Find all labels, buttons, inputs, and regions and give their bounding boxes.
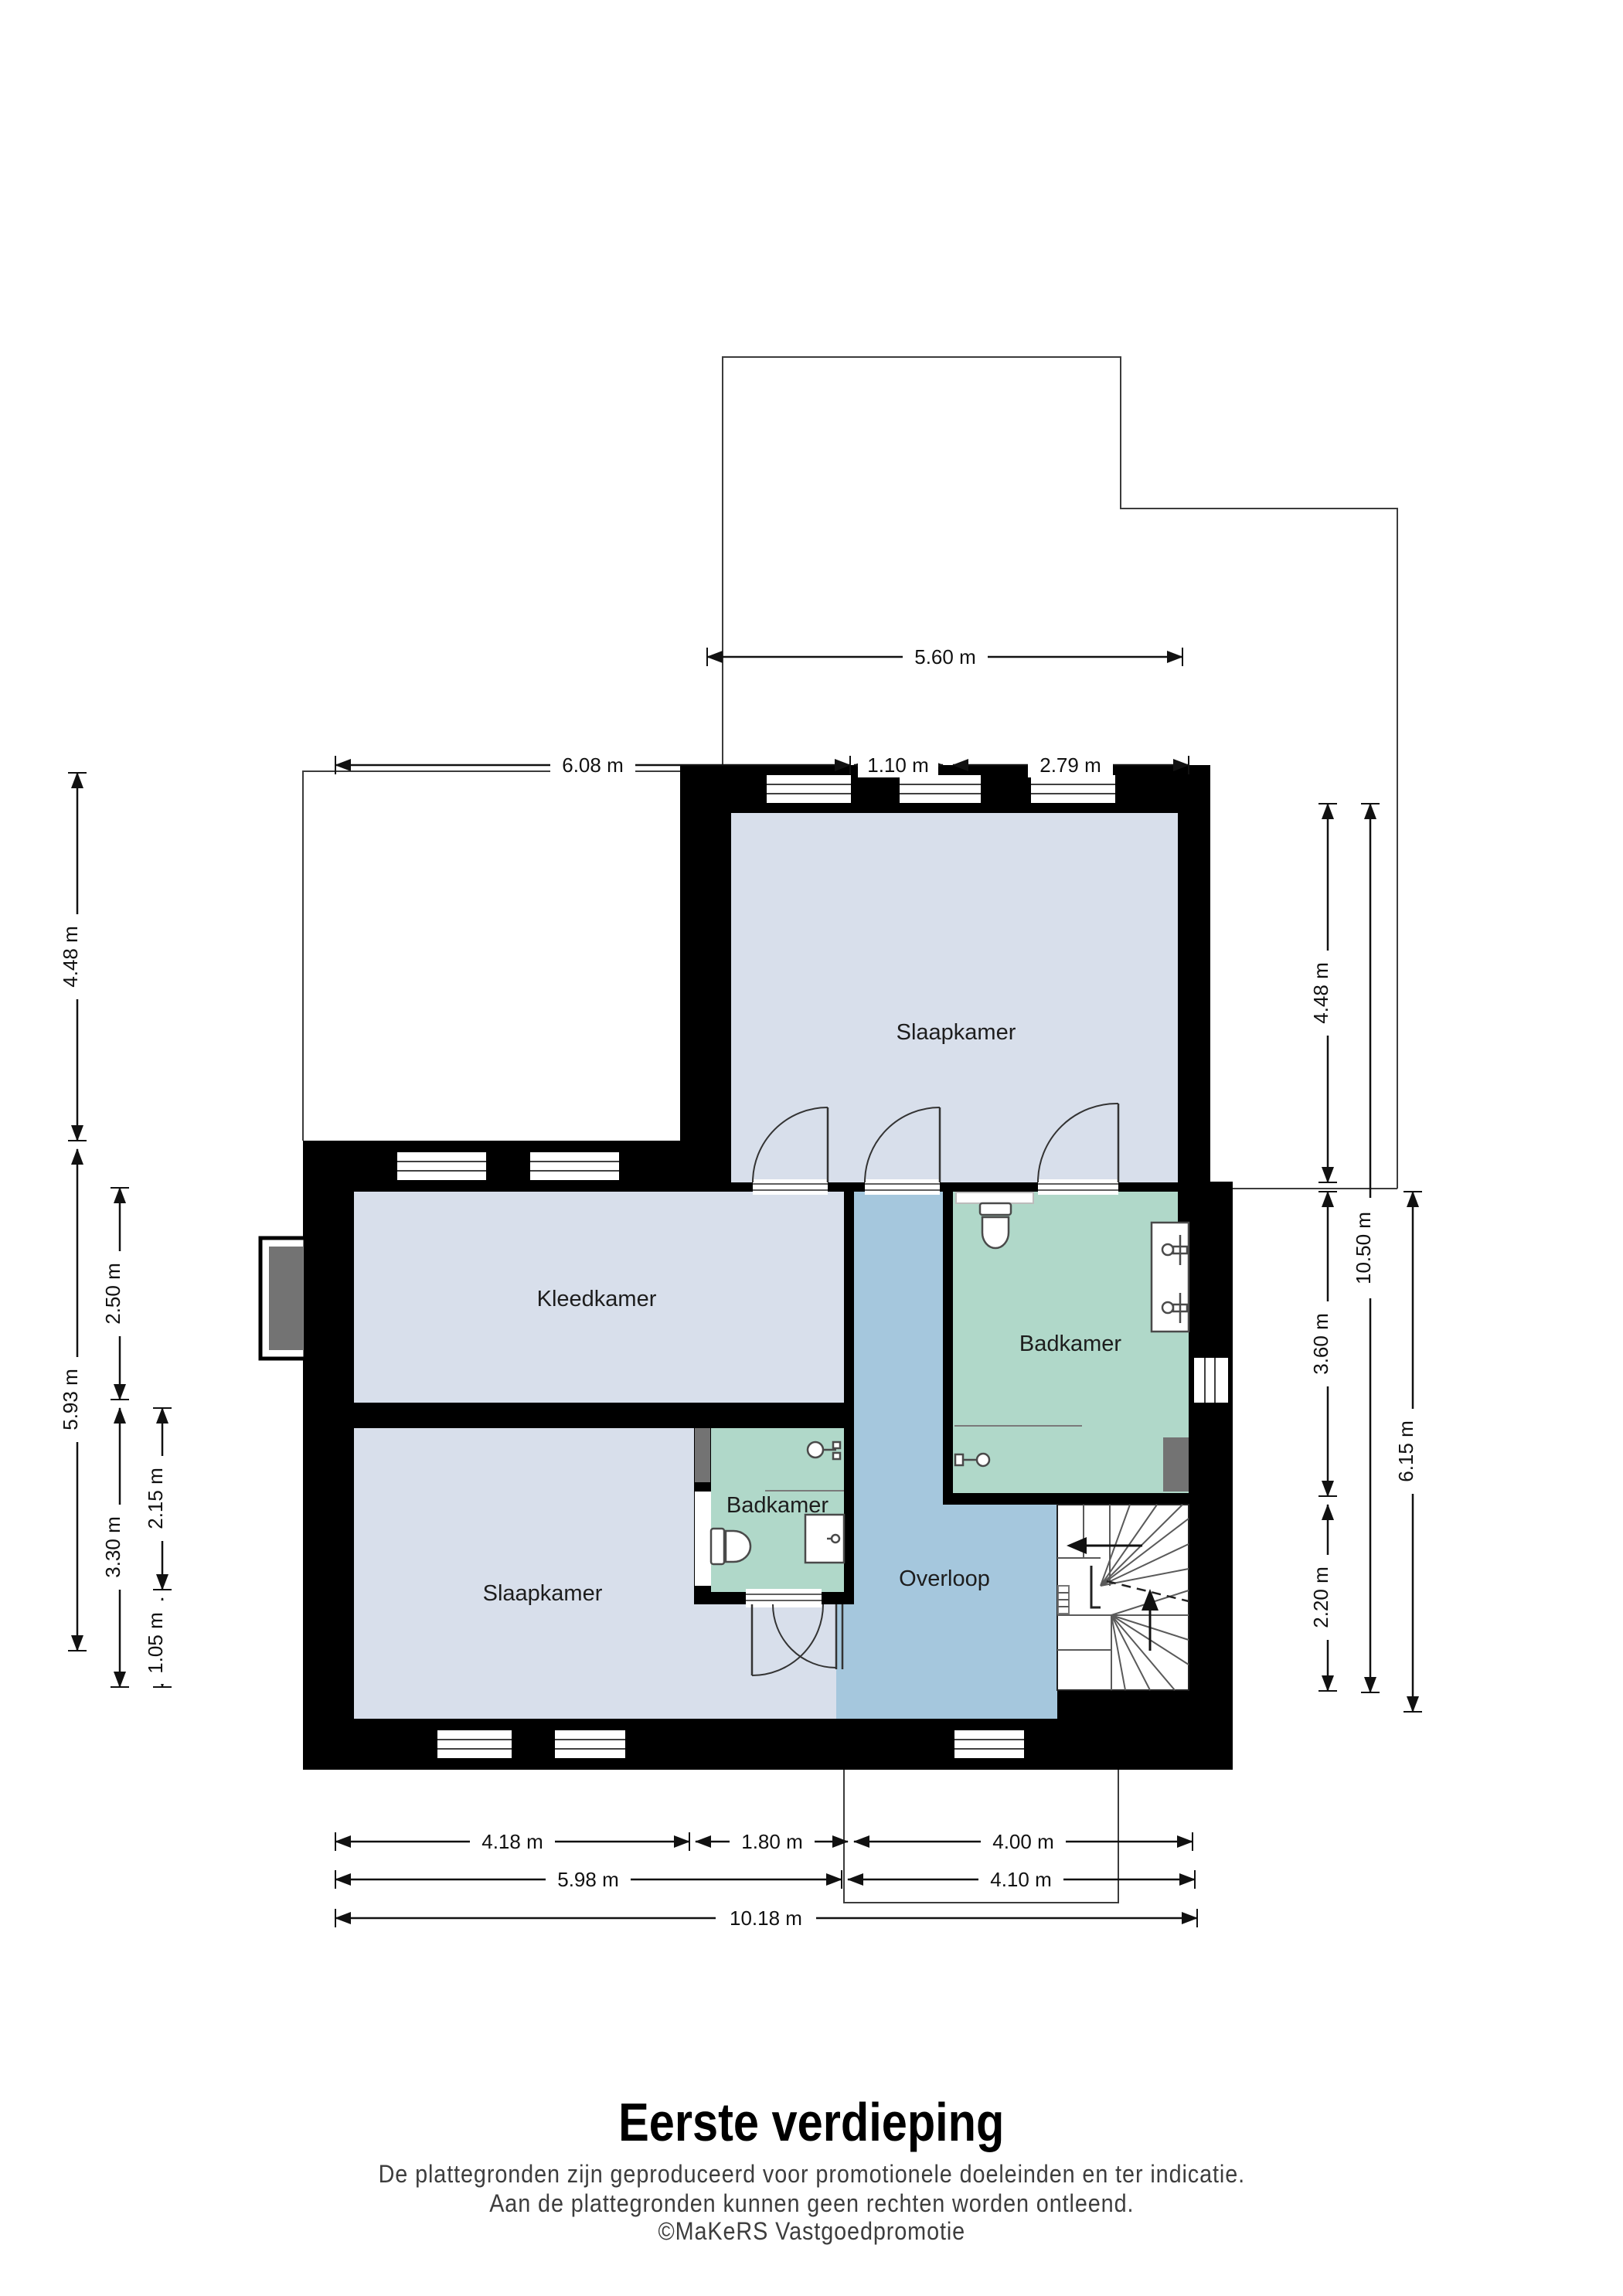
floorplan-page: Slaapkamer Kleedkamer Slaapkamer Badkame…: [0, 0, 1623, 2296]
room-label-bathroom-small: Badkamer: [726, 1493, 829, 1518]
dim-left-2: 2.50 m: [101, 1188, 132, 1400]
dim-right-2: 2.20 m: [1309, 1505, 1340, 1691]
room-label-landing: Overloop: [899, 1566, 990, 1591]
credit-line: ©MaKeRS Vastgoedpromotie: [658, 2218, 965, 2246]
room-label-dressing: Kleedkamer: [537, 1287, 657, 1311]
window-icon: [954, 1730, 1025, 1759]
window-icon: [554, 1730, 626, 1759]
svg-text:10.18 m: 10.18 m: [730, 1907, 802, 1930]
door-recess: [695, 1492, 711, 1586]
window-icon: [1030, 774, 1116, 804]
dim-top-0: 5.60 m: [707, 645, 1182, 669]
sink-cabinet-icon: [805, 1515, 844, 1563]
dim-right-4: 6.15 m: [1394, 1192, 1425, 1712]
door-threshold: [1038, 1179, 1118, 1195]
disclaimer-line-2: Aan de plattegronden kunnen geen rechten…: [489, 2190, 1134, 2218]
double-sink-icon: [1152, 1223, 1189, 1332]
svg-text:4.18 m: 4.18 m: [481, 1830, 543, 1853]
svg-text:3.30 m: 3.30 m: [101, 1516, 124, 1578]
svg-text:1.10 m: 1.10 m: [867, 753, 929, 777]
svg-text:4.48 m: 4.48 m: [59, 926, 82, 988]
dim-left-4: 2.15 m: [144, 1408, 175, 1590]
dim-bottom-1: 1.80 m: [696, 1829, 848, 1854]
svg-text:1.80 m: 1.80 m: [741, 1830, 803, 1853]
chimney: [260, 1238, 305, 1359]
svg-text:2.15 m: 2.15 m: [144, 1468, 167, 1529]
bedroom-top-floor: [731, 813, 1178, 1182]
window-icon: [396, 1151, 487, 1181]
footer: Eerste verdieping De plattegronden zijn …: [379, 2091, 1245, 2245]
svg-text:6.15 m: 6.15 m: [1394, 1420, 1417, 1482]
svg-text:2.20 m: 2.20 m: [1309, 1566, 1332, 1628]
svg-text:2.50 m: 2.50 m: [101, 1263, 124, 1325]
door-threshold: [753, 1179, 828, 1195]
door-threshold: [746, 1589, 822, 1607]
toilet-icon: [980, 1203, 1011, 1248]
dim-bottom-0: 4.18 m: [335, 1829, 689, 1854]
room-label-bedroom-bottom: Slaapkamer: [483, 1581, 603, 1606]
svg-text:5.60 m: 5.60 m: [914, 645, 976, 668]
door-threshold: [865, 1179, 940, 1195]
toilet-icon: [711, 1529, 750, 1564]
dim-left-0: 4.48 m: [59, 773, 90, 1141]
dim-top-2: 1.10 m: [854, 753, 943, 777]
duct-small-bathroom: [695, 1428, 710, 1482]
dim-right-3: 10.50 m: [1352, 804, 1383, 1692]
dim-bottom-4: 4.10 m: [848, 1867, 1195, 1892]
dim-bottom-5: 10.18 m: [335, 1906, 1197, 1930]
window-icon: [437, 1730, 512, 1759]
page-title: Eerste verdieping: [618, 2091, 1004, 2152]
window-icon: [899, 774, 982, 804]
svg-text:6.08 m: 6.08 m: [562, 753, 624, 777]
staircase: [1057, 1505, 1189, 1690]
room-label-bedroom-top: Slaapkamer: [897, 1020, 1016, 1045]
dim-right-1: 3.60 m: [1309, 1192, 1340, 1496]
svg-text:10.50 m: 10.50 m: [1352, 1212, 1375, 1284]
svg-text:4.00 m: 4.00 m: [992, 1830, 1054, 1853]
window-icon: [766, 774, 852, 804]
dim-left-1: 5.93 m: [59, 1149, 90, 1651]
room-label-bathroom-large: Badkamer: [1019, 1332, 1122, 1356]
svg-text:5.98 m: 5.98 m: [557, 1868, 619, 1891]
svg-text:3.60 m: 3.60 m: [1309, 1313, 1332, 1375]
svg-text:4.10 m: 4.10 m: [990, 1868, 1052, 1891]
svg-text:4.48 m: 4.48 m: [1309, 962, 1332, 1024]
window-icon: [1193, 1357, 1229, 1403]
duct-stairwell: [1163, 1437, 1189, 1492]
dim-left-5: 1.05 m: [144, 1598, 175, 1687]
svg-text:5.93 m: 5.93 m: [59, 1369, 82, 1430]
dim-bottom-3: 5.98 m: [335, 1867, 842, 1892]
svg-text:2.79 m: 2.79 m: [1039, 753, 1101, 777]
dim-left-3: 3.30 m: [101, 1408, 132, 1687]
handrail-icon: [1058, 1586, 1069, 1614]
shelf-icon: [956, 1192, 1033, 1203]
window-icon: [529, 1151, 620, 1181]
dim-right-0: 4.48 m: [1309, 804, 1340, 1182]
disclaimer-line-1: De plattegronden zijn geproduceerd voor …: [379, 2161, 1245, 2189]
svg-text:1.05 m: 1.05 m: [144, 1612, 167, 1674]
dim-bottom-2: 4.00 m: [854, 1829, 1193, 1854]
